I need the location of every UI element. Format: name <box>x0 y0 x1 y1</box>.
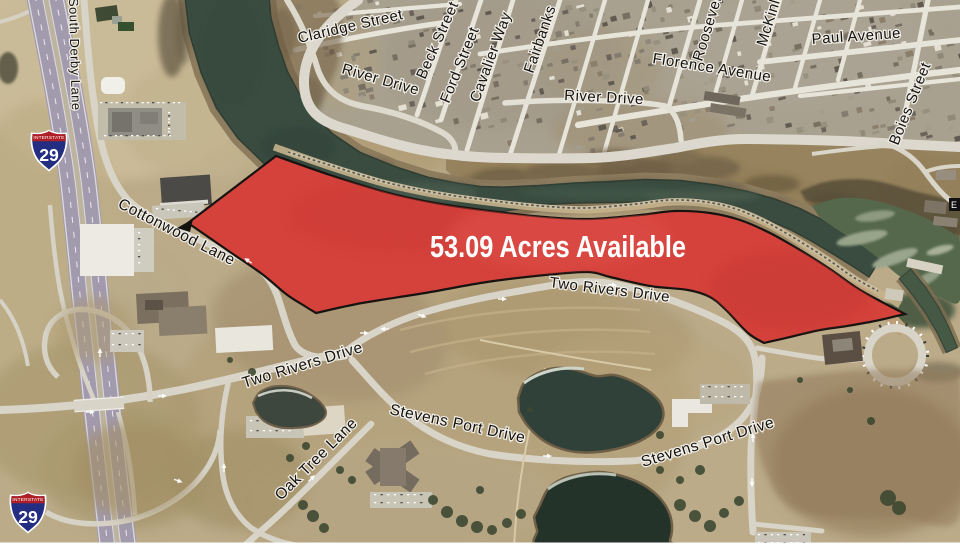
svg-text:29: 29 <box>39 145 59 165</box>
svg-text:South Derby Lane: South Derby Lane <box>66 0 84 111</box>
svg-text:INTERSTATE: INTERSTATE <box>12 497 43 503</box>
svg-text:29: 29 <box>18 507 38 527</box>
svg-text:53.09 Acres Available: 53.09 Acres Available <box>430 229 686 264</box>
svg-text:E: E <box>951 200 957 210</box>
svg-text:INTERSTATE: INTERSTATE <box>33 135 64 141</box>
